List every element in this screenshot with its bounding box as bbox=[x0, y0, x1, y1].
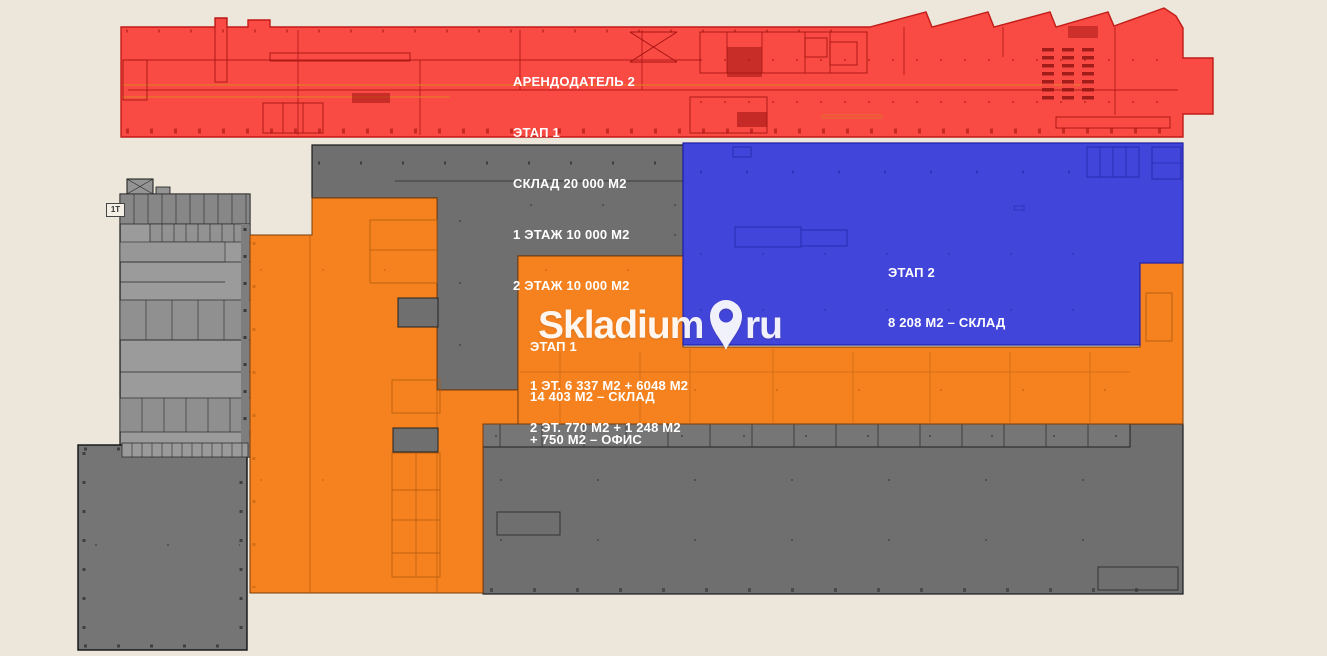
site-plan-canvas: АРЕНДОДАТЕЛЬ 2 ЭТАП 1 СКЛАД 20 000 М2 1 … bbox=[0, 0, 1327, 656]
stage2-line: ЭТАП 2 bbox=[888, 265, 1005, 281]
watermark-tld-text: ru bbox=[745, 304, 782, 348]
zone-landlord2-shape bbox=[121, 8, 1213, 137]
watermark-brand-text: Skladium bbox=[538, 304, 703, 348]
landlord2-line: 1 ЭТАЖ 10 000 М2 bbox=[513, 226, 635, 243]
stage1-line: + 750 М2 – ОФИС bbox=[530, 431, 642, 448]
southwest-gray-building-shape bbox=[78, 445, 247, 650]
landlord2-line: ЭТАП 1 bbox=[513, 124, 635, 141]
landlord2-line: АРЕНДОДАТЕЛЬ 2 bbox=[513, 73, 635, 90]
stage2-line: 8 208 М2 – СКЛАД bbox=[888, 315, 1005, 331]
annex-tag-label: 1Т bbox=[106, 203, 125, 217]
stage1-label-office: + 750 М2 – ОФИС bbox=[530, 397, 642, 482]
skladium-watermark: Skladium ru bbox=[538, 298, 798, 356]
annex-bottom-rooms bbox=[122, 443, 248, 457]
annex-building-shape bbox=[120, 179, 250, 457]
landlord2-line: СКЛАД 20 000 М2 bbox=[513, 175, 635, 192]
landlord2-line: 2 ЭТАЖ 10 000 М2 bbox=[513, 277, 635, 294]
landlord2-label: АРЕНДОДАТЕЛЬ 2 ЭТАП 1 СКЛАД 20 000 М2 1 … bbox=[513, 39, 635, 328]
map-pin-icon bbox=[708, 298, 744, 352]
stage1-line: 1 ЭТ. 6 337 М2 + 6048 М2 bbox=[530, 379, 688, 393]
stage2-label: ЭТАП 2 8 208 М2 – СКЛАД bbox=[888, 231, 1005, 365]
